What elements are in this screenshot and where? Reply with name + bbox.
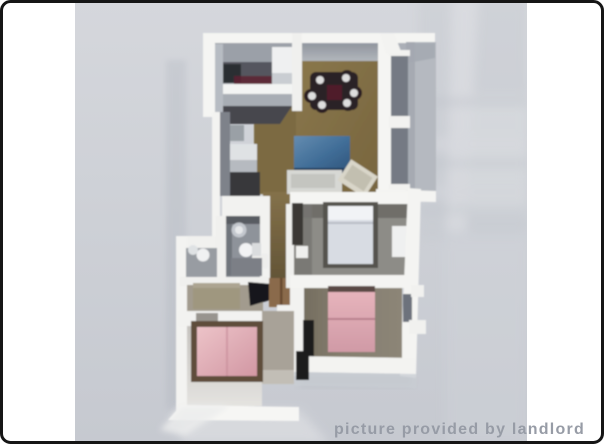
svg-text:picture provided by landlord: picture provided by landlord — [334, 421, 585, 438]
